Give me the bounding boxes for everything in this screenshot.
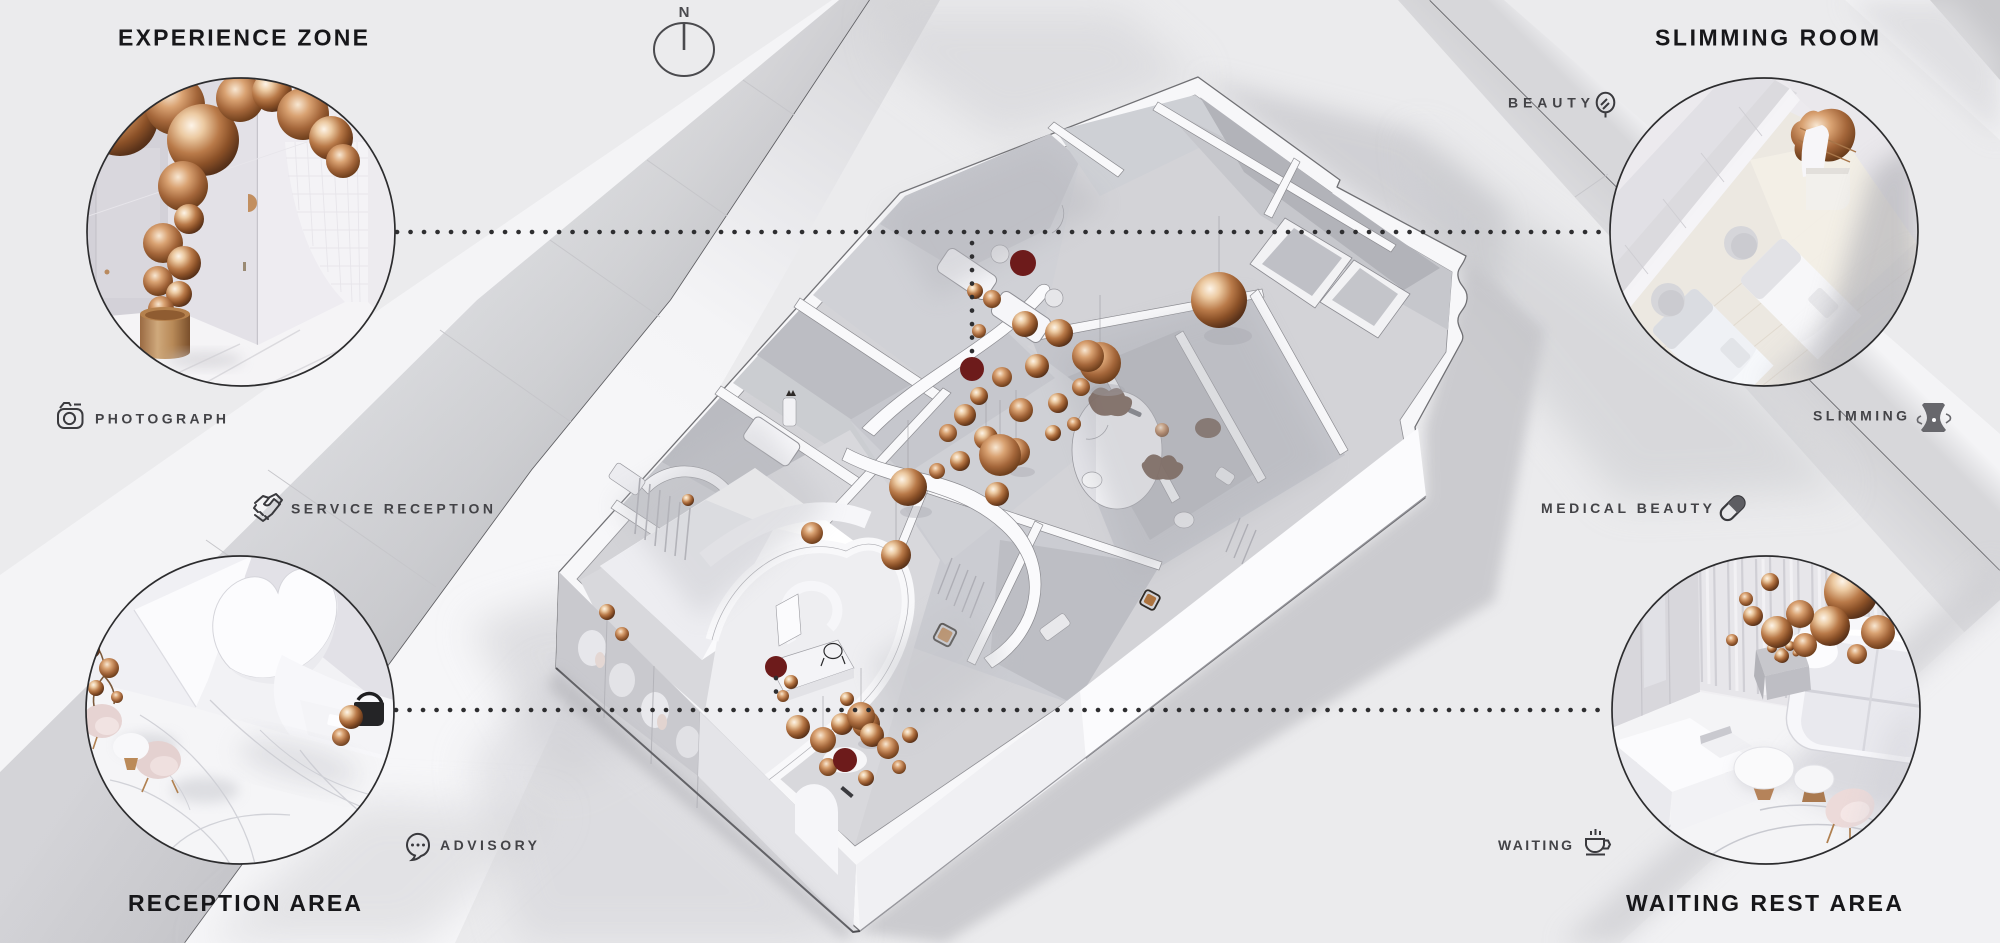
svg-text:WAITING: WAITING (1498, 837, 1575, 853)
svg-text:RECEPTION AREA: RECEPTION AREA (128, 890, 364, 916)
svg-text:SERVICE RECEPTION: SERVICE RECEPTION (291, 501, 496, 517)
svg-text:MEDICAL BEAUTY: MEDICAL BEAUTY (1541, 500, 1715, 516)
svg-text:SLIMMING: SLIMMING (1813, 408, 1910, 424)
svg-text:EXPERIENCE ZONE: EXPERIENCE ZONE (118, 25, 371, 51)
svg-text:N: N (679, 4, 690, 21)
svg-text:ADVISORY: ADVISORY (440, 837, 540, 853)
svg-text:WAITING REST AREA: WAITING REST AREA (1626, 890, 1905, 916)
svg-text:PHOTOGRAPH: PHOTOGRAPH (95, 411, 229, 427)
svg-text:SLIMMING ROOM: SLIMMING ROOM (1655, 25, 1882, 51)
